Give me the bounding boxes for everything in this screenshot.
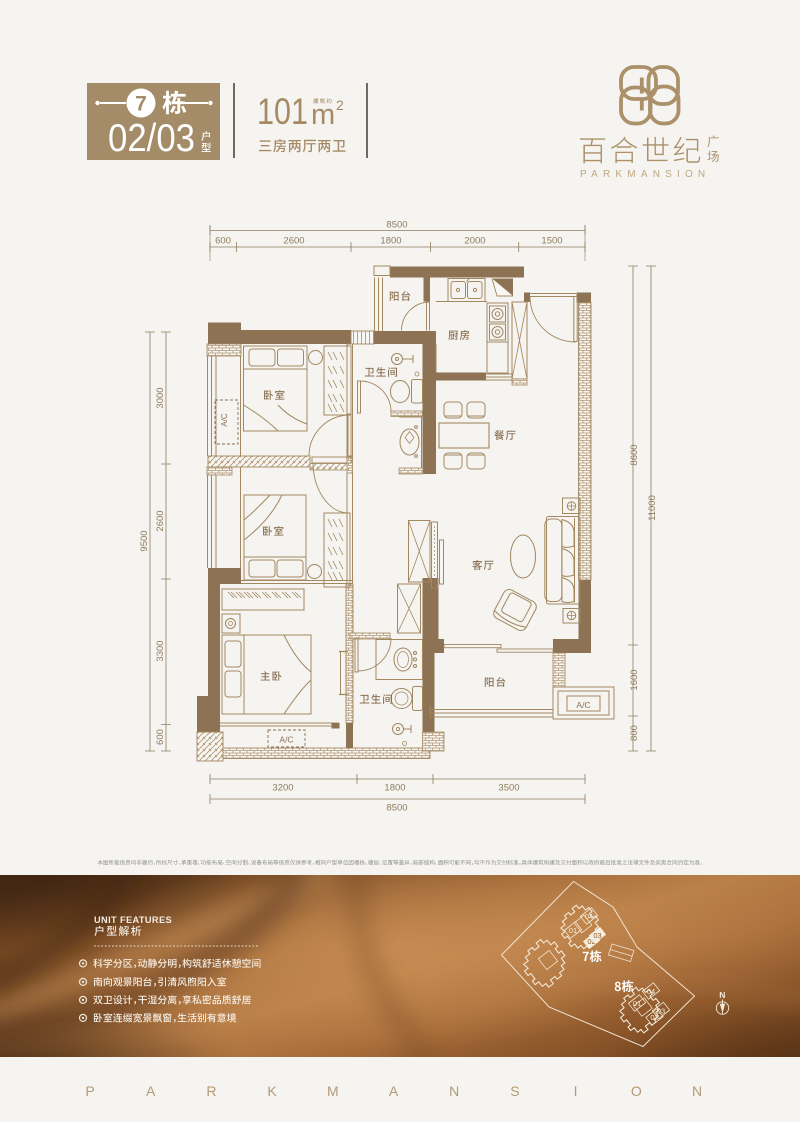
svg-text:1600: 1600: [629, 669, 640, 690]
svg-text:01: 01: [633, 999, 641, 1008]
svg-text:1500: 1500: [541, 236, 562, 247]
svg-text:3200: 3200: [272, 783, 293, 794]
svg-text:3500: 3500: [498, 783, 519, 794]
svg-text:N: N: [449, 1083, 459, 1099]
svg-text:600: 600: [155, 729, 166, 745]
svg-text:01: 01: [569, 926, 577, 935]
svg-text:I: I: [574, 1083, 578, 1099]
svg-text:04: 04: [585, 912, 593, 921]
svg-text:UNIT FEATURES: UNIT FEATURES: [94, 915, 172, 925]
svg-text:1800: 1800: [380, 236, 401, 247]
svg-text:A: A: [146, 1083, 156, 1099]
svg-text:N: N: [719, 990, 725, 1000]
svg-text:K: K: [267, 1083, 277, 1099]
svg-text:03: 03: [657, 1007, 665, 1016]
svg-text:R: R: [206, 1083, 216, 1099]
svg-text:A/C: A/C: [576, 700, 590, 710]
svg-text:S: S: [510, 1083, 519, 1099]
svg-text:2600: 2600: [283, 236, 304, 247]
svg-text:3000: 3000: [155, 387, 166, 408]
svg-text:M: M: [327, 1083, 339, 1099]
svg-text:P: P: [85, 1083, 94, 1099]
svg-text:04: 04: [647, 987, 655, 996]
svg-text:PARKMANSION: PARKMANSION: [580, 169, 710, 180]
svg-text:2: 2: [336, 97, 344, 113]
svg-text:03: 03: [593, 931, 601, 940]
svg-text:2000: 2000: [464, 236, 485, 247]
svg-text:8500: 8500: [386, 803, 407, 814]
svg-text:m: m: [311, 99, 335, 131]
svg-text:3300: 3300: [155, 640, 166, 661]
svg-text:A: A: [389, 1083, 399, 1099]
svg-text:A/C: A/C: [279, 735, 293, 745]
svg-text:8600: 8600: [629, 444, 640, 465]
svg-text:8500: 8500: [386, 220, 407, 231]
svg-text:A/C: A/C: [220, 413, 229, 427]
svg-text:02/03: 02/03: [108, 117, 195, 160]
svg-text:O: O: [631, 1083, 642, 1099]
svg-text:800: 800: [629, 725, 640, 741]
svg-text:101: 101: [257, 91, 308, 132]
svg-text:1800: 1800: [384, 783, 405, 794]
svg-text:7: 7: [135, 93, 147, 116]
svg-text:N: N: [692, 1083, 702, 1099]
svg-text:9500: 9500: [139, 530, 150, 551]
svg-text:600: 600: [215, 236, 231, 247]
svg-text:2600: 2600: [155, 510, 166, 531]
svg-text:11000: 11000: [647, 495, 658, 521]
